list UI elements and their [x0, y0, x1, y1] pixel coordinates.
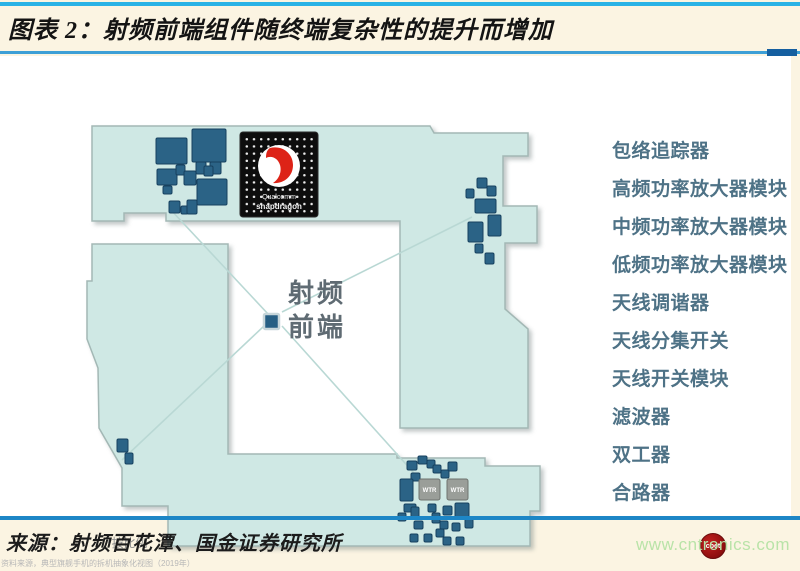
fine-print-caption: 资料来源，典型旗舰手机的拆机抽象化视图（2019年） [1, 558, 195, 569]
legend-item: 高频功率放大器模块 [612, 180, 788, 199]
legend-item: 包络追踪器 [612, 142, 788, 161]
title-divider-endcap [767, 49, 797, 56]
legend-item: 合路器 [612, 484, 788, 503]
source-text: 来源：射频百花潭、国金证券研究所 [6, 527, 342, 556]
pcb-diagram: WTR WTR Qualcomm snapdragon 射频 前端 [20, 114, 580, 571]
legend-item: 天线开关模块 [612, 370, 788, 389]
snapdragon-chip: Qualcomm snapdragon [240, 132, 318, 217]
legend-item: 天线分集开关 [612, 332, 788, 351]
chip-brand-line1: Qualcomm [262, 194, 296, 201]
rf-frontend-marker [264, 314, 279, 329]
top-accent-bar [0, 2, 800, 6]
legend-item: 天线调谐器 [612, 294, 788, 313]
figure-canvas: WTR WTR Qualcomm snapdragon 射频 前端 包络追踪器 … [0, 56, 791, 516]
website-link[interactable]: www.cntronics.com [636, 535, 790, 555]
wtr-chip-label: WTR [423, 488, 437, 494]
legend-item: 中频功率放大器模块 [612, 218, 788, 237]
legend-item: 滤波器 [612, 408, 788, 427]
rf-frontend-label-line2: 前端 [288, 312, 346, 342]
wtr-chip-label: WTR [451, 488, 465, 494]
title-divider [0, 51, 800, 54]
component-legend: 包络追踪器 高频功率放大器模块 中频功率放大器模块 低频功率放大器模块 天线调谐… [612, 142, 788, 503]
chip-brand-line2: snapdragon [256, 202, 302, 211]
rf-frontend-label-line1: 射频 [287, 278, 346, 308]
legend-item: 双工器 [612, 446, 788, 465]
legend-item: 低频功率放大器模块 [612, 256, 788, 275]
bottom-divider [0, 516, 800, 520]
figure-title: 图表 2：射频前端组件随终端复杂性的提升而增加 [8, 10, 728, 45]
